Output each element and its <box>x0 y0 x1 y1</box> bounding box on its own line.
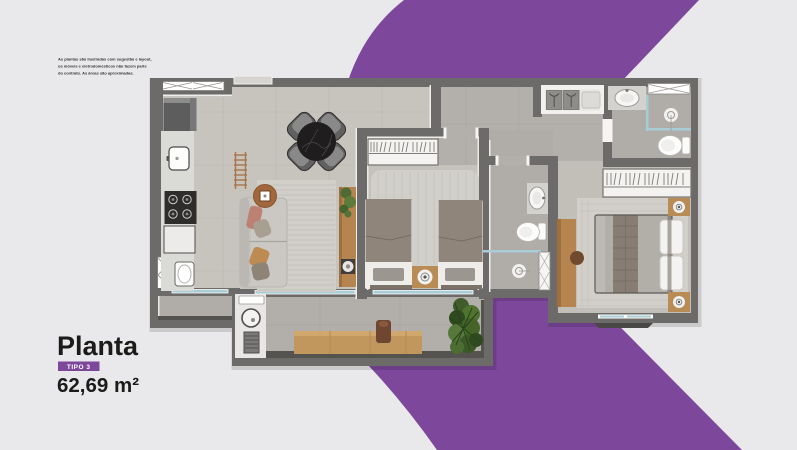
svg-text:As plantas são ilustradas com: As plantas são ilustradas com sugestão e… <box>58 57 152 62</box>
svg-text:do contrato. As áreas são apro: do contrato. As áreas são aproximadas. <box>58 71 134 76</box>
svg-text:Planta: Planta <box>57 331 139 361</box>
svg-text:os móveis e eletrodomésticos n: os móveis e eletrodomésticos não fazem p… <box>58 64 147 69</box>
svg-text:62,69 m²: 62,69 m² <box>57 374 139 397</box>
svg-text:TIPO 3: TIPO 3 <box>67 364 91 371</box>
